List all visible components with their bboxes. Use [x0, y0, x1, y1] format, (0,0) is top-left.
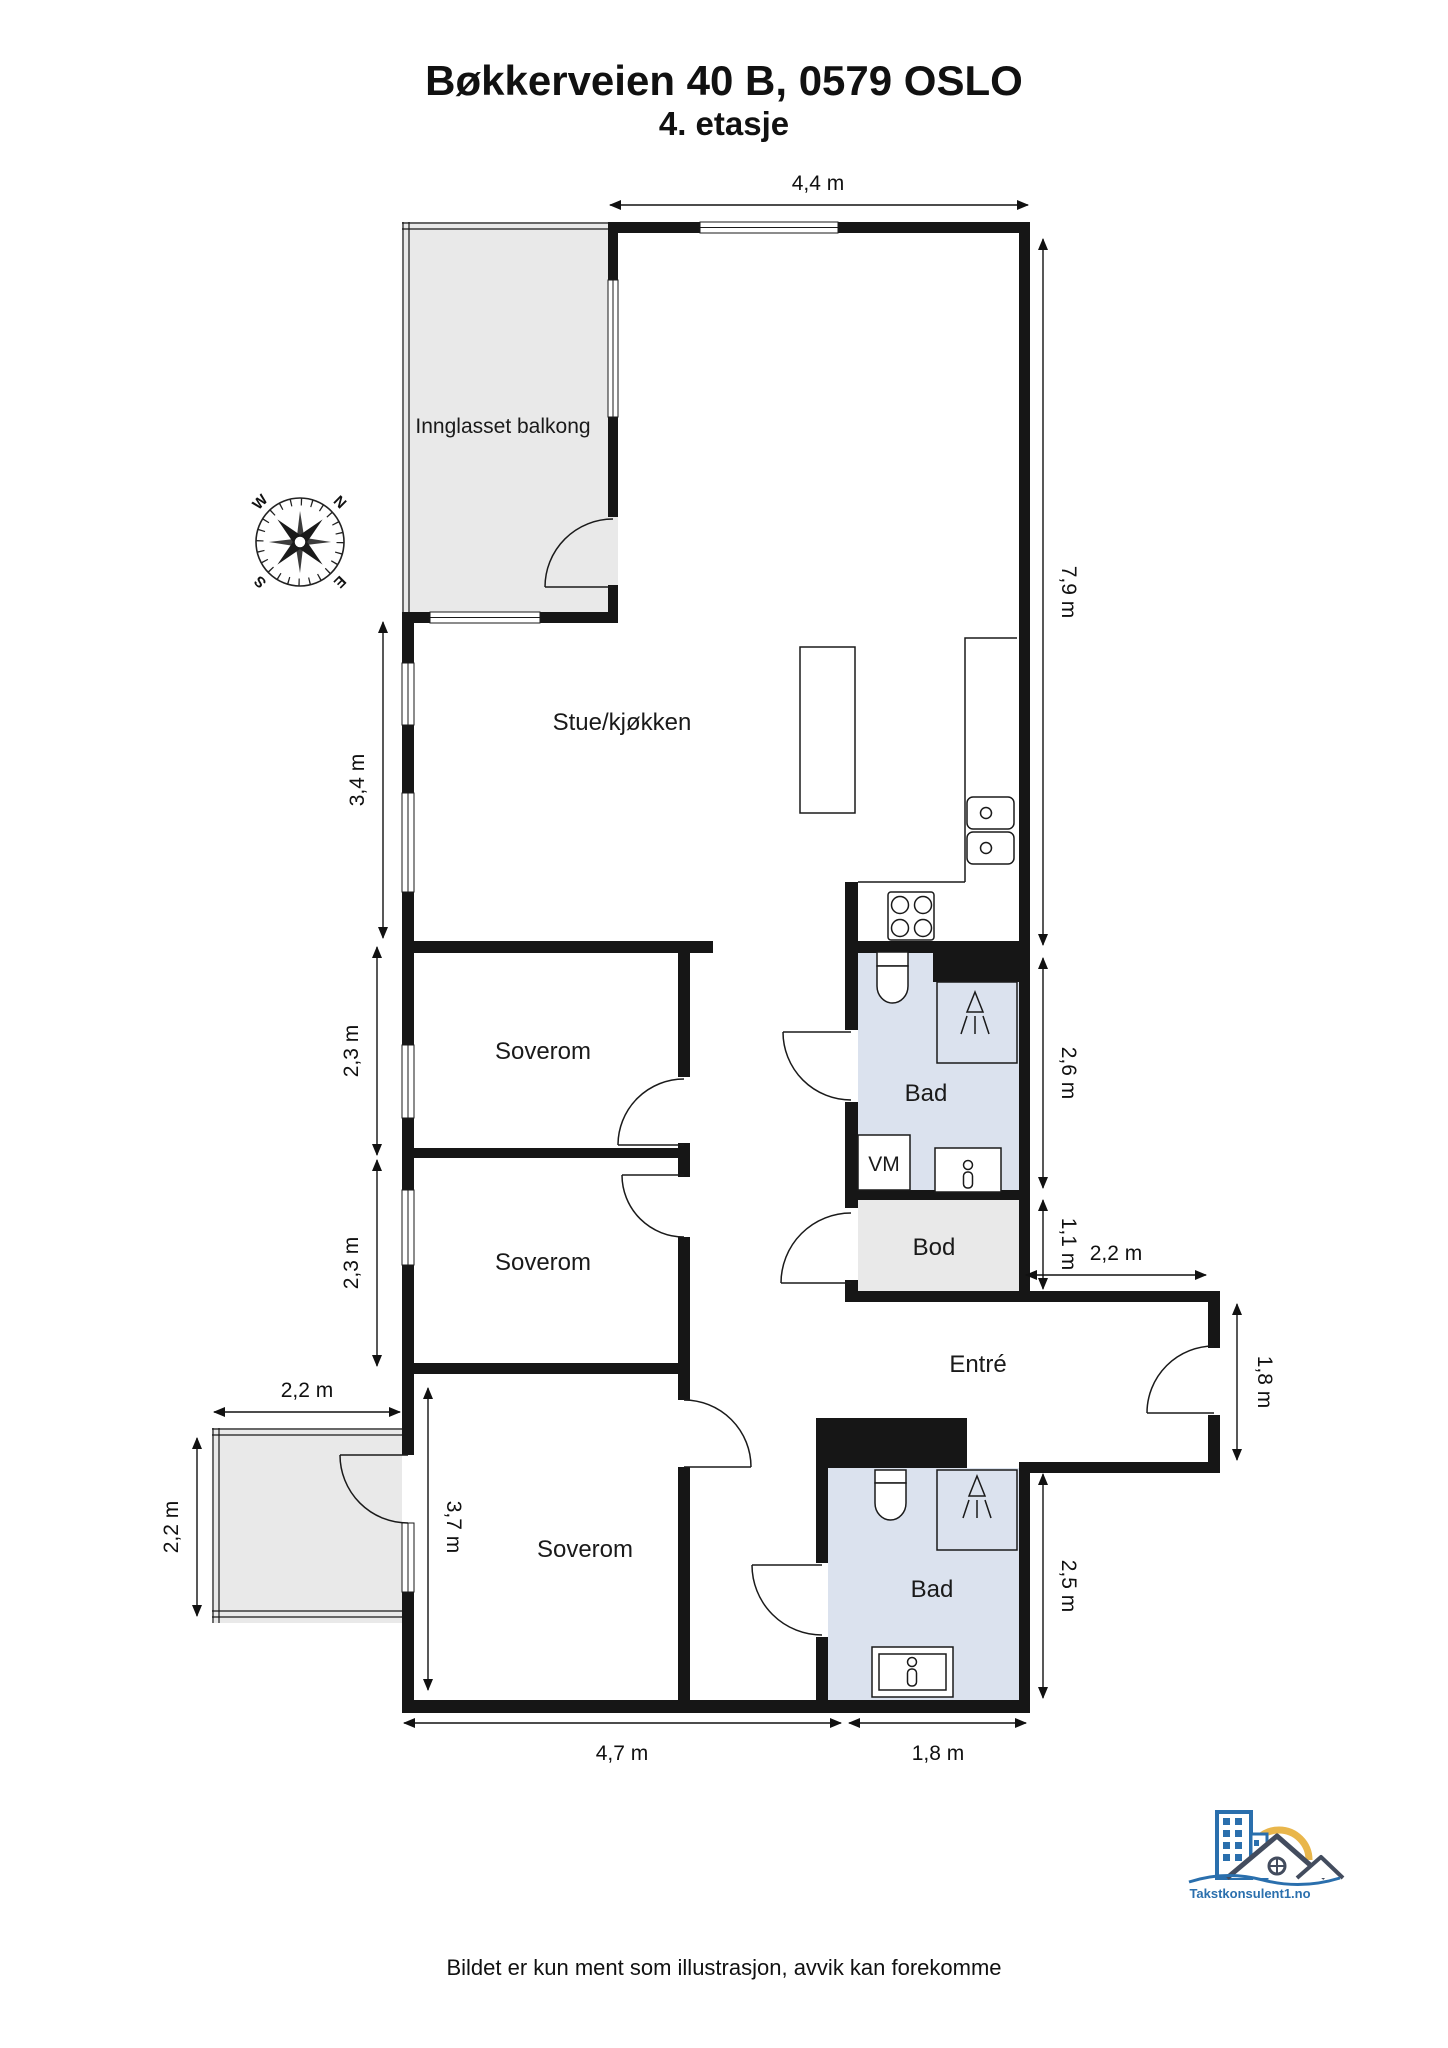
door-bedroom3 [684, 1400, 751, 1467]
page-subtitle: 4. etasje [659, 105, 789, 142]
label-living-kitchen: Stue/kjøkken [553, 709, 692, 736]
company-logo: Takstkonsulent1.no [1189, 1812, 1343, 1901]
kitchen-island [800, 647, 855, 813]
dim-bedroom1-left: 2,3 m [340, 1025, 363, 1078]
compass-n: N [330, 493, 350, 513]
label-bathroom2: Bad [911, 1576, 954, 1603]
dim-storage-right: 1,1 m [1057, 1218, 1080, 1271]
dim-bedroom3-height: 3,7 m [442, 1501, 465, 1554]
compass-w: W [249, 491, 272, 514]
door-bedroom1 [618, 1079, 684, 1145]
dim-balcony-width: 2,2 m [281, 1379, 334, 1402]
toilet-icon-2 [875, 1470, 906, 1520]
disclaimer-text: Bildet er kun ment som illustrasjon, avv… [446, 1955, 1001, 1980]
dim-living-left: 3,4 m [346, 754, 369, 807]
floor-plan-page: Bøkkerveien 40 B, 0579 OSLO 4. etasje [0, 0, 1448, 2048]
dim-bath2-right: 2,5 m [1057, 1560, 1080, 1613]
label-bedroom1: Soverom [495, 1038, 591, 1065]
door-bathroom2 [752, 1565, 822, 1635]
kitchen-sink-icon [967, 797, 1014, 864]
label-bedroom2: Soverom [495, 1249, 591, 1276]
sink-icon-2 [872, 1647, 953, 1697]
dim-top-width: 4,4 m [792, 172, 845, 195]
compass-s: S [251, 572, 270, 591]
dim-entry-door: 1,8 m [1253, 1356, 1276, 1409]
kitchen [800, 638, 1017, 940]
dim-balcony-height: 2,2 m [160, 1501, 183, 1554]
sink-icon [935, 1148, 1001, 1192]
balcony-floor [212, 1428, 402, 1623]
compass-e: E [330, 572, 349, 591]
dim-bedroom2-left: 2,3 m [340, 1237, 363, 1290]
door-entrance [1147, 1346, 1214, 1413]
label-entry: Entré [949, 1351, 1006, 1378]
door-bedroom2 [622, 1175, 684, 1237]
page-title: Bøkkerveien 40 B, 0579 OSLO [425, 57, 1023, 104]
dim-bedroom3-width: 4,7 m [596, 1742, 649, 1765]
door-storage [781, 1213, 851, 1283]
dim-hall-width: 2,2 m [1090, 1242, 1143, 1265]
label-glazed-balcony: Innglasset balkong [415, 415, 590, 438]
label-bedroom3: Soverom [537, 1536, 633, 1563]
dim-bath1-right: 2,6 m [1057, 1047, 1080, 1100]
door-bathroom1 [783, 1032, 851, 1100]
dim-bath2-width: 1,8 m [912, 1742, 965, 1765]
label-storage: Bod [913, 1234, 956, 1261]
label-bathroom1: Bad [905, 1080, 948, 1107]
compass-icon: N E S W [249, 491, 349, 591]
dim-right-height: 7,9 m [1057, 566, 1080, 619]
stove-icon [888, 892, 934, 940]
floor-plan: Bøkkerveien 40 B, 0579 OSLO 4. etasje [0, 0, 1448, 2048]
toilet-icon [877, 952, 908, 1003]
logo-text: Takstkonsulent1.no [1189, 1886, 1310, 1901]
label-washer: VM [868, 1153, 900, 1176]
